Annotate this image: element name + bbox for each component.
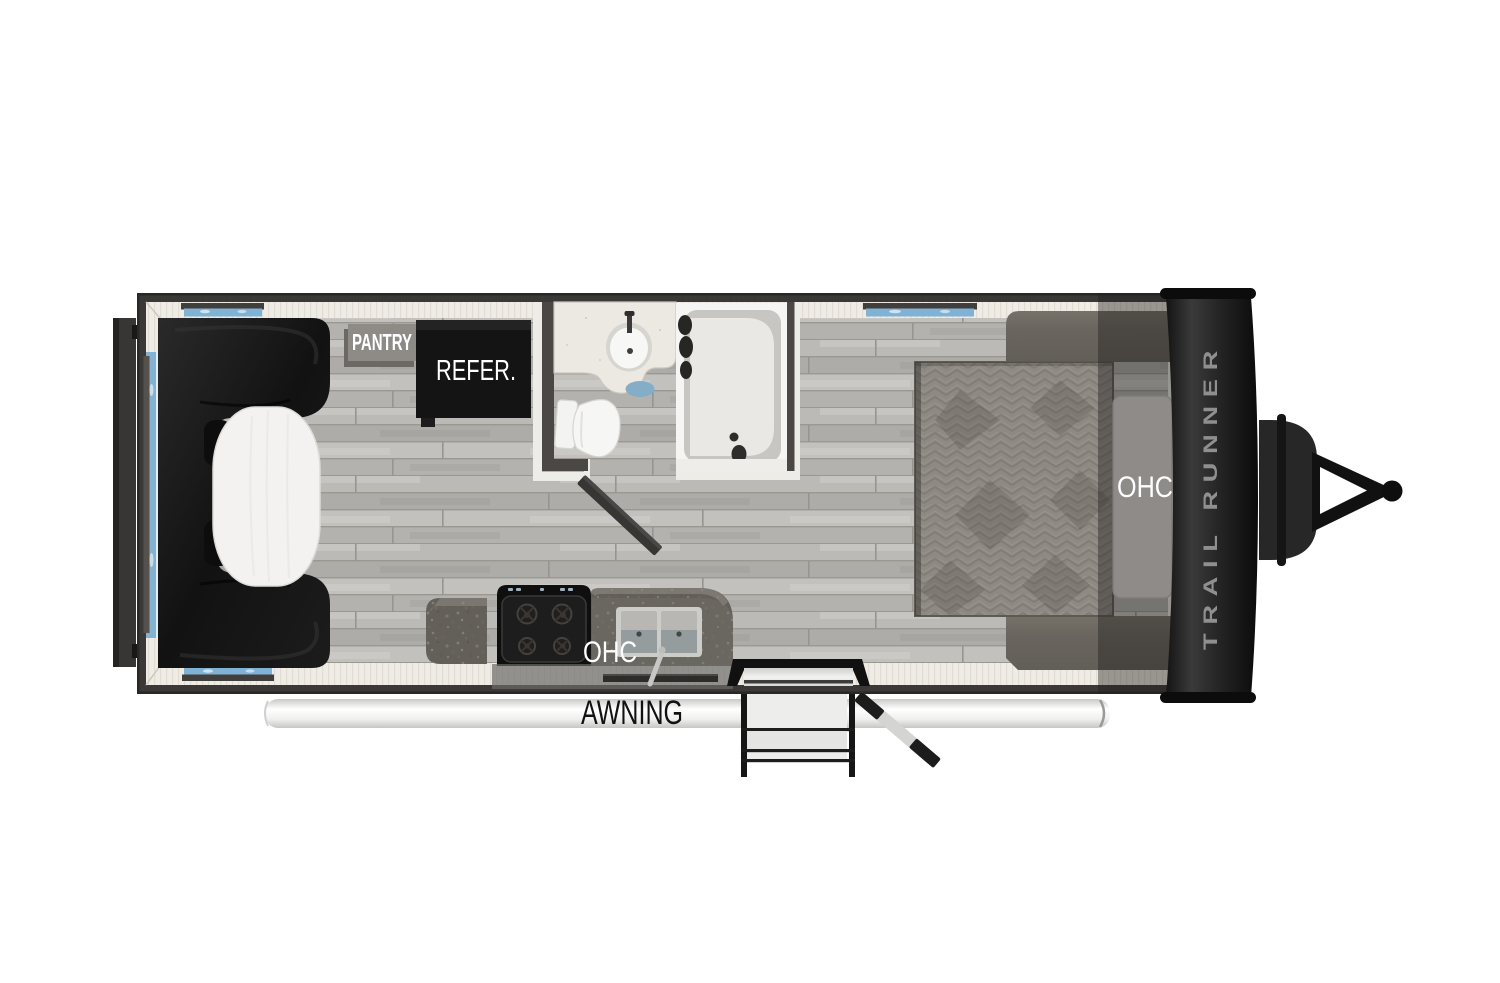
svg-text:OHC: OHC: [583, 636, 637, 669]
svg-text:REFER.: REFER.: [436, 355, 516, 387]
svg-text:AWNING: AWNING: [581, 694, 683, 732]
svg-text:TRAIL RUNNER: TRAIL RUNNER: [1201, 342, 1222, 650]
svg-text:OHC: OHC: [1117, 471, 1173, 504]
svg-text:PANTRY: PANTRY: [352, 329, 412, 355]
